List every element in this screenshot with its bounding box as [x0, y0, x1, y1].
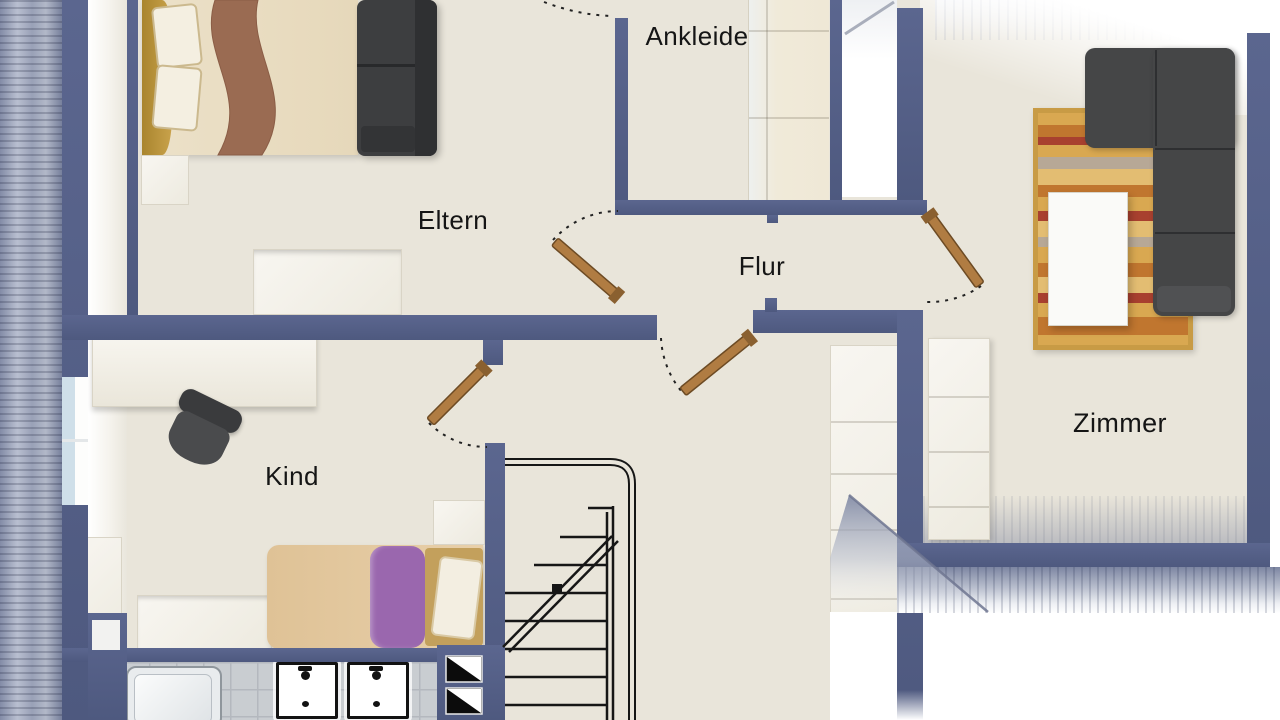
bed-eltern-pillow: [151, 3, 203, 69]
room-label-kind: Kind: [242, 461, 342, 492]
exterior-white-corner: [830, 612, 897, 720]
dresser-eltern: [253, 249, 402, 315]
room-label-ankleide: Ankleide: [622, 21, 772, 52]
sink: [276, 662, 338, 719]
shelf-zimmer: [928, 338, 990, 540]
room-label-flur: Flur: [712, 251, 812, 282]
room-label-eltern: Eltern: [388, 205, 518, 236]
bed-eltern: [142, 0, 358, 155]
roof-eave-left: [0, 0, 62, 720]
sink: [347, 662, 409, 719]
sideboard-kind: [137, 595, 272, 650]
wall-zimmer-right: [1247, 33, 1270, 567]
skylight-void: [842, 0, 897, 197]
wall-void-left: [830, 0, 842, 200]
bathtub: [126, 666, 222, 720]
wall-main-horizontal: [62, 315, 657, 340]
bed-kind: [267, 545, 483, 649]
chimney-block: [437, 645, 505, 720]
wall-stub-up: [765, 298, 777, 312]
wall-zimmer-bottom: [897, 543, 1270, 567]
wall-stub: [767, 215, 778, 223]
nightstand-kind: [433, 500, 485, 545]
wall-ankleide-bottom: [615, 200, 927, 215]
nightstand-eltern: [141, 155, 189, 205]
room-label-zimmer: Zimmer: [1050, 408, 1190, 439]
floor-plan: Eltern Ankleide Flur Kind Zimmer: [0, 0, 1280, 720]
wall-flur-right-top: [897, 8, 923, 200]
sofa-eltern: [357, 0, 437, 156]
bed-eltern-pillow: [151, 64, 202, 132]
wall-fade-bottom: [897, 690, 923, 720]
knee-wall-strip: [88, 0, 127, 613]
wall-stub-kind-door: [483, 340, 503, 365]
wall-flur-right-low: [897, 310, 923, 720]
wall-eltern-left: [127, 0, 138, 318]
bed-kind-duvet: [370, 546, 425, 648]
wall-outer-left: [62, 0, 88, 720]
wall-flur-bottom-right: [753, 310, 897, 333]
table-zimmer: [1048, 192, 1128, 326]
bath-niche: [92, 620, 120, 650]
window-kind: [62, 377, 88, 505]
roof-eave-under-zimmer: [897, 567, 1280, 613]
